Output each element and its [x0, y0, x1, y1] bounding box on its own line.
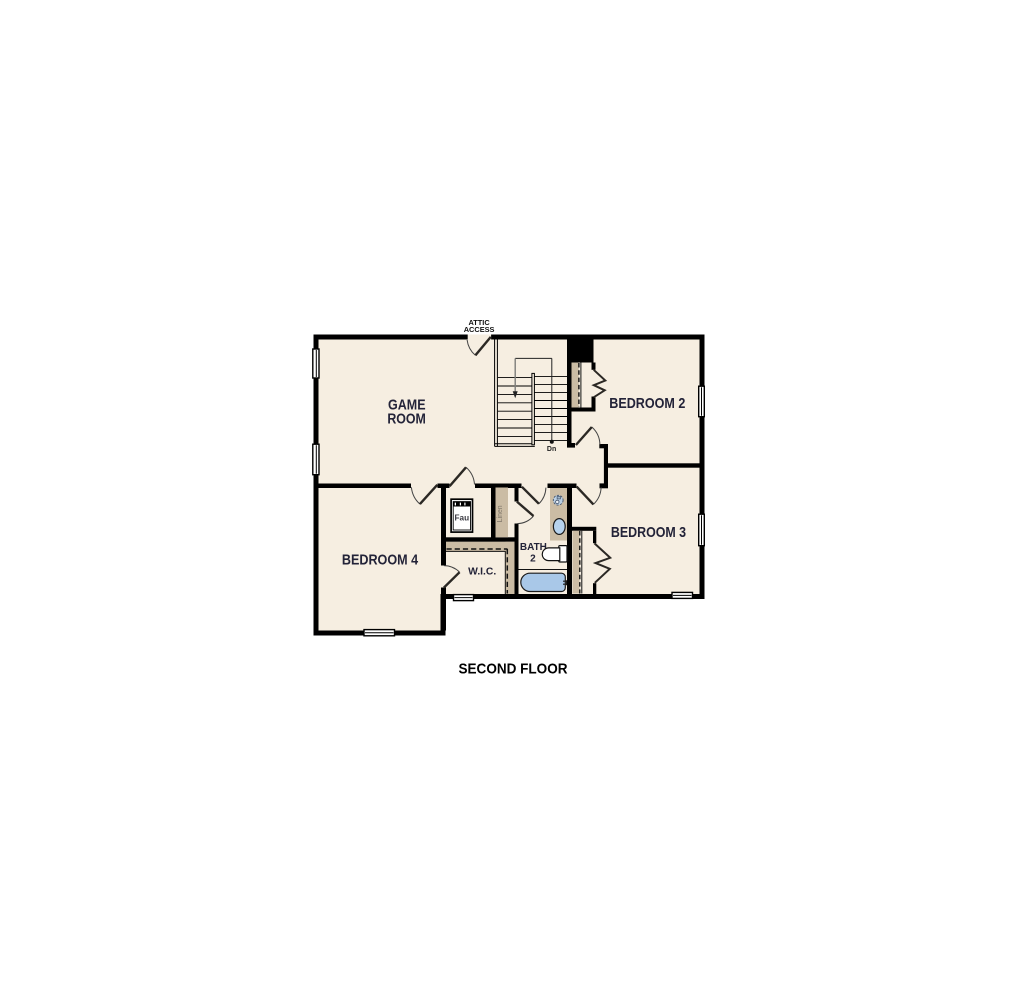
svg-text:BEDROOM 3: BEDROOM 3 [611, 525, 686, 541]
svg-text:Fau: Fau [455, 513, 470, 522]
svg-text:ACCESS: ACCESS [464, 325, 495, 334]
svg-text:2: 2 [530, 553, 536, 564]
svg-text:BEDROOM 4: BEDROOM 4 [342, 552, 419, 568]
svg-text:Linen: Linen [497, 505, 504, 522]
svg-text:BEDROOM 2: BEDROOM 2 [609, 396, 685, 412]
svg-text:SECOND FLOOR: SECOND FLOOR [459, 661, 568, 678]
svg-text:ROOM: ROOM [387, 411, 426, 427]
svg-text:W.I.C.: W.I.C. [468, 566, 496, 577]
svg-text:Dn: Dn [547, 446, 556, 453]
